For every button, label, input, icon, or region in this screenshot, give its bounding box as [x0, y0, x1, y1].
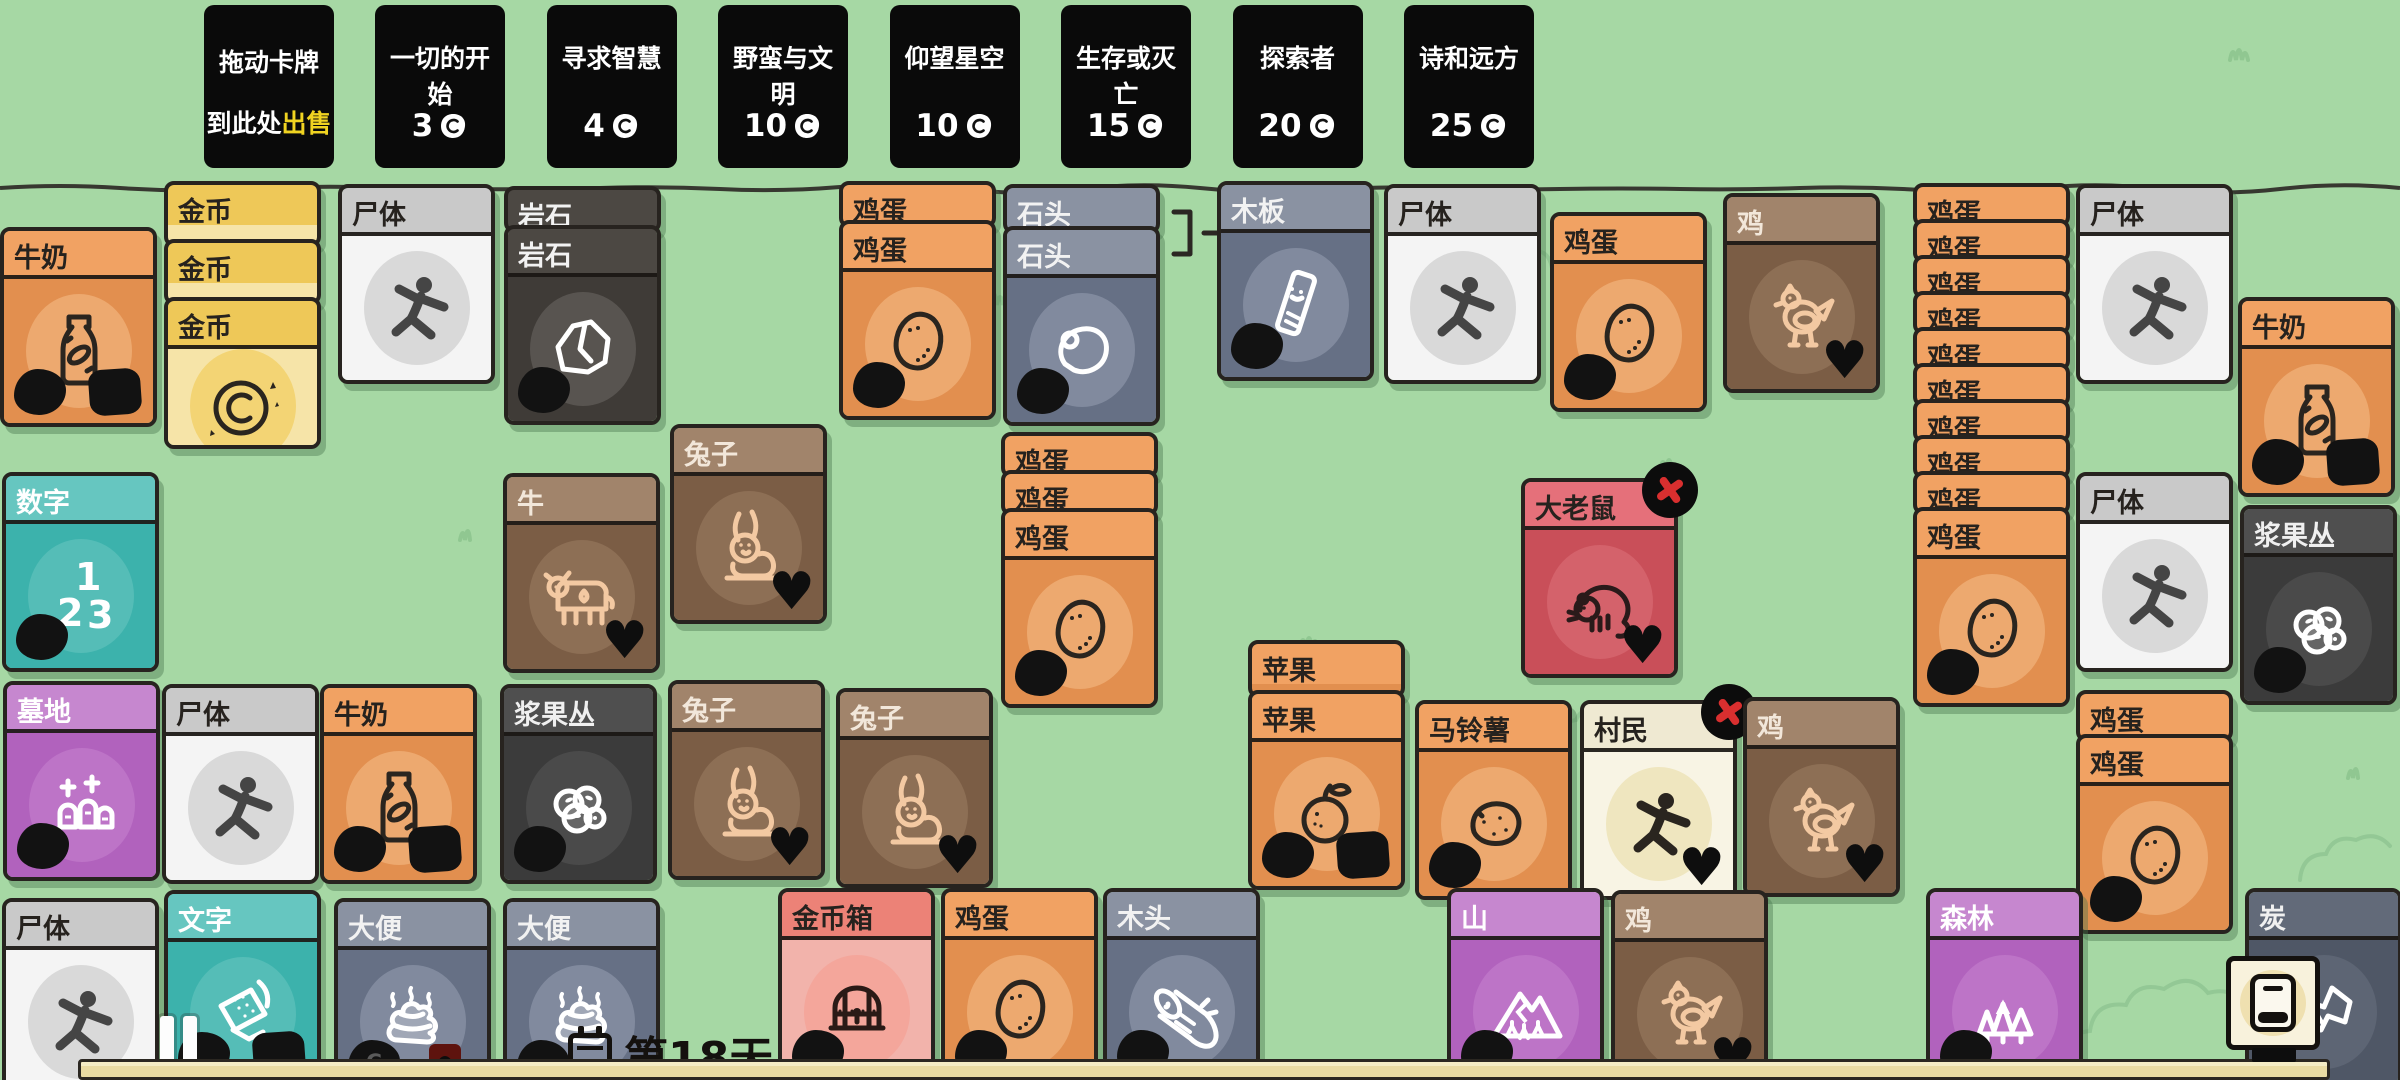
close-attack-button[interactable]	[1642, 462, 1698, 518]
value-blob	[1564, 354, 1616, 400]
card-art	[508, 277, 657, 421]
pack-name: 野蛮与文明	[718, 41, 848, 114]
corpse-icon	[2102, 539, 2208, 653]
health-heart-icon: ♥	[1841, 839, 1888, 891]
card-rabbit-3[interactable]: 兔子 ♥	[836, 688, 993, 888]
deck-button-stand	[2252, 1048, 2296, 1062]
top-card[interactable]: 木头	[1103, 888, 1260, 1080]
card-milk-3[interactable]: 牛奶	[320, 684, 477, 884]
health-heart-icon: ♥	[766, 822, 813, 874]
card-art	[1221, 233, 1370, 377]
value-blob	[14, 369, 66, 415]
coin-icon	[1307, 111, 1337, 141]
card-art: ♥	[1727, 245, 1876, 389]
top-card[interactable]: 鸡 ♥	[1743, 697, 1900, 897]
card-title: 鸡蛋	[1554, 216, 1703, 264]
card-title: 苹果	[1252, 694, 1401, 742]
top-card[interactable]: 数字 123	[2, 472, 159, 672]
card-title: 数字	[6, 476, 155, 524]
card-title: 马铃薯	[1419, 704, 1568, 752]
value-blob	[518, 367, 570, 413]
top-card[interactable]: 森林	[1926, 888, 2083, 1080]
pack-price: 20	[1233, 108, 1363, 144]
card-art	[504, 736, 653, 880]
card-art	[2080, 786, 2229, 930]
value-blob	[1429, 842, 1481, 888]
card-title: 鸡蛋	[843, 224, 992, 272]
card-title: 大便	[338, 902, 487, 950]
stacked-card-header[interactable]: 金币	[164, 239, 321, 305]
pack-name: 仰望星空	[890, 41, 1020, 77]
corpse-icon	[2102, 251, 2208, 365]
card-title: 大便	[507, 902, 656, 950]
card-title: 鸡蛋	[1917, 511, 2066, 559]
card-art	[324, 736, 473, 880]
sell-instructions: 拖动卡牌 到此处出售	[204, 45, 334, 141]
corpse-icon	[364, 251, 470, 365]
card-art	[2080, 524, 2229, 668]
card-art	[1252, 742, 1401, 886]
card-art: 123	[6, 524, 155, 668]
health-heart-icon: ♥	[1619, 620, 1666, 672]
card-plank[interactable]: 木板	[1217, 181, 1374, 381]
health-heart-icon: ♥	[934, 830, 981, 882]
card-title: 兔子	[672, 684, 821, 732]
top-card[interactable]: 尸体	[2, 898, 159, 1080]
top-card[interactable]: 岩石	[504, 225, 661, 425]
card-egg-stack-big[interactable]: 鸡蛋 鸡蛋 鸡蛋 鸡蛋 鸡蛋 鸡蛋 鸡蛋 鸡蛋 鸡蛋 鸡蛋	[1913, 183, 2070, 707]
top-card[interactable]: 尸体	[2076, 472, 2233, 672]
top-card[interactable]: 兔子 ♥	[670, 424, 827, 624]
card-title: 木头	[1107, 892, 1256, 940]
card-villager[interactable]: 村民 ♥	[1580, 700, 1737, 900]
card-title: 尸体	[1388, 188, 1537, 236]
card-title: 牛奶	[324, 688, 473, 736]
pack-price: 4	[547, 108, 677, 144]
pack-card-6[interactable]: 探索者 20	[1233, 5, 1363, 168]
top-card[interactable]: 尸体	[2076, 184, 2233, 384]
coin-icon	[1478, 111, 1508, 141]
value-blob	[1262, 832, 1314, 878]
card-art	[2242, 349, 2391, 493]
card-milk-1[interactable]: 牛奶	[0, 227, 157, 427]
pack-name: 寻求智慧	[547, 41, 677, 77]
card-art	[1388, 236, 1537, 380]
card-potato[interactable]: 马铃薯	[1415, 700, 1572, 900]
card-chicken-2[interactable]: 鸡 ♥	[1743, 697, 1900, 897]
card-poop-1[interactable]: 大便 C	[334, 898, 491, 1080]
corpse-icon	[1410, 251, 1516, 365]
pack-price: 15	[1061, 108, 1191, 144]
card-cow[interactable]: 牛 ♥	[503, 473, 660, 673]
card-title: 墓地	[7, 685, 156, 733]
sell-line-1: 拖动卡牌	[204, 45, 334, 80]
card-art	[1917, 559, 2066, 703]
card-title: 金币	[168, 301, 317, 349]
card-art: ♥	[507, 525, 656, 669]
coin-icon	[190, 349, 296, 449]
card-title: 尸体	[2080, 476, 2229, 524]
card-chicken-1[interactable]: 鸡 ♥	[1723, 193, 1880, 393]
value-blob	[2252, 439, 2304, 485]
card-title: 牛奶	[4, 231, 153, 279]
value-blob	[1927, 649, 1979, 695]
card-art: ♥	[1584, 752, 1733, 896]
card-art	[2080, 236, 2229, 380]
card-wood[interactable]: 木头	[1103, 888, 1260, 1080]
top-card[interactable]: 鸡 ♥	[1611, 890, 1768, 1080]
card-title: 森林	[1930, 892, 2079, 940]
pack-card-7[interactable]: 诗和远方 25	[1404, 5, 1534, 168]
card-apple-stack[interactable]: 苹果 苹果	[1248, 640, 1405, 890]
coin-icon	[438, 111, 468, 141]
value-blob	[16, 614, 68, 660]
value-blob	[334, 826, 386, 872]
top-card[interactable]: 大便 C	[334, 898, 491, 1080]
card-forest[interactable]: 森林	[1926, 888, 2083, 1080]
card-title: 鸡蛋	[2080, 738, 2229, 786]
top-card[interactable]: 兔子 ♥	[836, 688, 993, 888]
corpse-icon	[188, 751, 294, 865]
card-rabbit-1[interactable]: 兔子 ♥	[670, 424, 827, 624]
card-title: 鸡蛋	[945, 892, 1094, 940]
card-title: 尸体	[166, 688, 315, 736]
top-card[interactable]: 浆果丛	[500, 684, 657, 884]
top-card[interactable]: 兔子 ♥	[668, 680, 825, 880]
card-title: 炭	[2249, 892, 2398, 940]
card-title: 兔子	[674, 428, 823, 476]
top-card[interactable]: 金币	[164, 297, 321, 449]
pack-card-5[interactable]: 生存或灭亡 15	[1061, 5, 1191, 168]
card-egg-1[interactable]: 鸡蛋	[1550, 212, 1707, 412]
health-heart-icon: ♥	[601, 615, 648, 667]
top-card[interactable]: 鸡蛋	[2076, 734, 2233, 934]
card-egg-2[interactable]: 鸡蛋	[941, 888, 1098, 1080]
card-chicken-3[interactable]: 鸡 ♥	[1611, 890, 1768, 1080]
deck-button[interactable]	[2226, 956, 2320, 1050]
card-title: 鸡蛋	[1005, 512, 1154, 560]
value-blob	[1231, 323, 1283, 369]
card-corpse-4[interactable]: 尸体	[2076, 472, 2233, 672]
card-big-rat[interactable]: 大老鼠 ♥	[1521, 478, 1678, 678]
top-card[interactable]: 苹果	[1248, 690, 1405, 890]
card-title: 石头	[1007, 230, 1156, 278]
health-heart-icon: ♥	[768, 566, 815, 618]
game-board: 拖动卡牌 到此处出售 一切的开始 3寻求智慧 4野蛮与文明 10仰望星空 10生…	[0, 0, 2400, 1080]
card-coin-stack[interactable]: 金币 金币 金币	[164, 181, 321, 449]
sell-highlight: 出售	[282, 109, 332, 138]
pack-price: 10	[718, 108, 848, 144]
card-title: 尸体	[6, 902, 155, 950]
coin-icon	[610, 111, 640, 141]
pack-name: 生存或灭亡	[1061, 41, 1191, 114]
top-card[interactable]: 金币箱	[778, 888, 935, 1080]
value-blob	[514, 826, 566, 872]
top-card[interactable]: 尸体	[1384, 184, 1541, 384]
coin-icon	[964, 111, 994, 141]
day-progress-fill	[78, 1059, 2330, 1080]
pack-name: 探索者	[1233, 41, 1363, 77]
value-blob	[853, 362, 905, 408]
pack-price: 25	[1404, 108, 1534, 144]
card-art	[7, 733, 156, 877]
card-art: ♥	[1747, 749, 1896, 893]
top-card[interactable]: 鸡 ♥	[1723, 193, 1880, 393]
card-art: ♥	[1525, 530, 1674, 674]
top-card[interactable]: 牛奶	[2238, 297, 2395, 497]
coin-icon	[792, 111, 822, 141]
card-title: 兔子	[840, 692, 989, 740]
card-berry-bush-1[interactable]: 浆果丛	[2240, 505, 2397, 705]
health-heart-icon: ♥	[1821, 335, 1868, 387]
card-rock-stack[interactable]: 岩石 岩石	[504, 186, 661, 425]
card-egg-stack-c[interactable]: 鸡蛋 鸡蛋	[2076, 690, 2233, 934]
card-title: 尸体	[2080, 188, 2229, 236]
card-art: ♥	[672, 732, 821, 876]
value-blob	[2254, 647, 2306, 693]
day-progress-bar	[78, 1059, 2400, 1080]
card-corpse-6[interactable]: 尸体	[2, 898, 159, 1080]
top-card[interactable]: 墓地	[3, 681, 160, 881]
card-art	[1007, 278, 1156, 422]
card-title: 鸡	[1615, 894, 1764, 942]
card-rabbit-2[interactable]: 兔子 ♥	[668, 680, 825, 880]
card-art	[168, 349, 317, 449]
top-card[interactable]: 山	[1447, 888, 1604, 1080]
card-art	[342, 236, 491, 380]
top-card[interactable]: 鸡蛋	[1001, 508, 1158, 708]
pack-card-2[interactable]: 寻求智慧 4	[547, 5, 677, 168]
card-stone-stack[interactable]: 石头 石头	[1003, 184, 1160, 426]
card-title: 浆果丛	[504, 688, 653, 736]
top-card[interactable]: 鸡蛋	[1913, 507, 2070, 707]
pack-name: 诗和远方	[1404, 41, 1534, 77]
card-title: 尸体	[342, 188, 491, 236]
card-art	[843, 272, 992, 416]
top-card[interactable]: 石头	[1003, 226, 1160, 426]
value-blob	[1015, 650, 1067, 696]
card-art	[4, 279, 153, 423]
card-title: 牛奶	[2242, 301, 2391, 349]
health-heart-icon: ♥	[1678, 842, 1725, 894]
card-corpse-1[interactable]: 尸体	[338, 184, 495, 384]
value-blob	[17, 823, 69, 869]
card-art	[166, 736, 315, 880]
coin-icon	[1135, 111, 1165, 141]
top-card[interactable]: 牛奶	[320, 684, 477, 884]
top-card[interactable]: 浆果丛	[2240, 505, 2397, 705]
card-title: 木板	[1221, 185, 1370, 233]
card-mountain[interactable]: 山	[1447, 888, 1604, 1080]
value-blob	[2090, 876, 2142, 922]
card-art	[1554, 264, 1703, 408]
value-blob	[2325, 437, 2380, 487]
pack-card-3[interactable]: 野蛮与文明 10	[718, 5, 848, 168]
sell-drop-area[interactable]: 拖动卡牌 到此处出售	[204, 5, 334, 168]
top-card[interactable]: 牛奶	[0, 227, 157, 427]
card-art: ♥	[674, 476, 823, 620]
svg-text:3: 3	[87, 593, 113, 637]
value-blob	[87, 367, 142, 417]
card-corpse-3[interactable]: 尸体	[2076, 184, 2233, 384]
card-coin-chest[interactable]: 金币箱	[778, 888, 935, 1080]
pack-name: 一切的开始	[375, 41, 505, 114]
card-numbers[interactable]: 数字 123	[2, 472, 159, 672]
top-card[interactable]: 鸡蛋	[1550, 212, 1707, 412]
sell-line-2: 到此处出售	[204, 106, 334, 141]
top-card[interactable]: 马铃薯	[1415, 700, 1572, 900]
top-card[interactable]: 尸体	[162, 684, 319, 884]
value-blob	[1335, 830, 1390, 880]
deck-book-icon	[2250, 974, 2296, 1032]
card-title: 鸡	[1747, 701, 1896, 749]
card-art: ♥	[840, 740, 989, 884]
top-card[interactable]: 牛 ♥	[503, 473, 660, 673]
top-card[interactable]: 尸体	[338, 184, 495, 384]
top-card[interactable]: 鸡蛋	[941, 888, 1098, 1080]
card-title: 牛	[507, 477, 656, 525]
card-title: 鸡	[1727, 197, 1876, 245]
card-berry-bush-2[interactable]: 浆果丛	[500, 684, 657, 884]
card-art	[1419, 752, 1568, 896]
card-title: 山	[1451, 892, 1600, 940]
card-corpse-5[interactable]: 尸体	[162, 684, 319, 884]
card-corpse-2[interactable]: 尸体	[1384, 184, 1541, 384]
value-blob	[1017, 368, 1069, 414]
stacked-card-header[interactable]: 金币	[164, 181, 321, 247]
pack-card-4[interactable]: 仰望星空 10	[890, 5, 1020, 168]
card-egg-stack-a[interactable]: 鸡蛋 鸡蛋	[839, 181, 996, 420]
card-title: 浆果丛	[2244, 509, 2393, 557]
pack-price: 3	[375, 108, 505, 144]
card-graveyard[interactable]: 墓地	[3, 681, 160, 881]
card-art	[2244, 557, 2393, 701]
card-title: 金币箱	[782, 892, 931, 940]
card-title: 文字	[168, 894, 317, 942]
top-card[interactable]: 鸡蛋	[839, 220, 996, 420]
card-title: 岩石	[508, 229, 657, 277]
pack-price: 10	[890, 108, 1020, 144]
card-art	[1005, 560, 1154, 704]
value-blob	[407, 824, 462, 874]
top-card[interactable]: 木板	[1217, 181, 1374, 381]
card-milk-2[interactable]: 牛奶	[2238, 297, 2395, 497]
card-egg-stack-b[interactable]: 鸡蛋 鸡蛋 鸡蛋	[1001, 432, 1158, 708]
pack-card-1[interactable]: 一切的开始 3	[375, 5, 505, 168]
